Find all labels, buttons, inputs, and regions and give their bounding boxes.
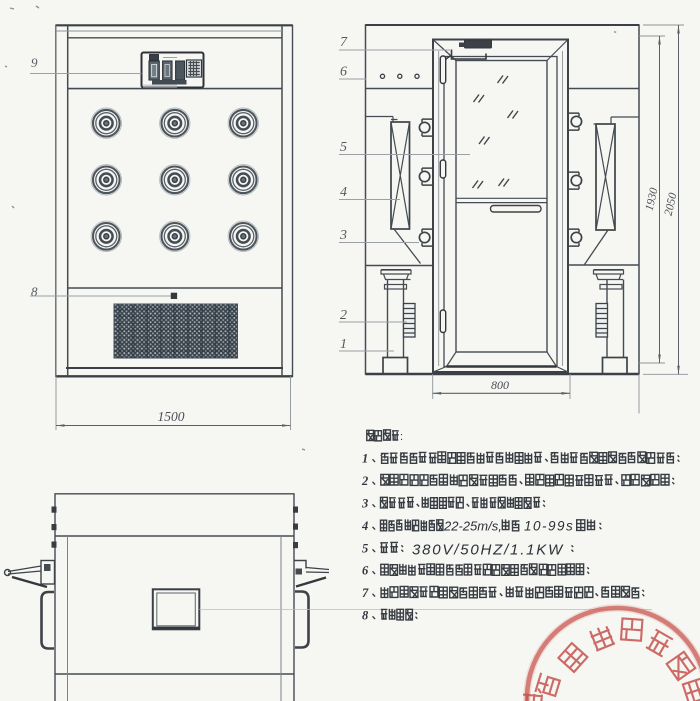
svg-text::: : bbox=[400, 431, 403, 443]
svg-text:7: 7 bbox=[340, 35, 348, 50]
svg-text:1: 1 bbox=[340, 337, 347, 352]
svg-text:6: 6 bbox=[340, 65, 347, 80]
svg-text:2050: 2050 bbox=[663, 192, 680, 217]
svg-text:9: 9 bbox=[31, 55, 38, 70]
svg-text:4: 4 bbox=[340, 185, 347, 200]
svg-text:4: 4 bbox=[361, 519, 368, 533]
svg-text:3: 3 bbox=[339, 228, 347, 243]
svg-text:5: 5 bbox=[362, 541, 368, 555]
svg-text:8: 8 bbox=[362, 608, 369, 622]
svg-text:2: 2 bbox=[340, 308, 347, 323]
svg-text:22-25m/s,: 22-25m/s, bbox=[443, 519, 502, 534]
svg-text:5: 5 bbox=[340, 140, 347, 155]
svg-text:1: 1 bbox=[362, 451, 368, 465]
svg-text:380V/50HZ/1.1KW: 380V/50HZ/1.1KW bbox=[412, 542, 564, 559]
svg-text:800: 800 bbox=[491, 378, 509, 392]
svg-text:2: 2 bbox=[361, 474, 368, 488]
svg-text:8: 8 bbox=[31, 284, 38, 299]
svg-text:1930: 1930 bbox=[644, 187, 661, 212]
svg-text:10-99s: 10-99s bbox=[524, 519, 574, 534]
svg-text:6: 6 bbox=[362, 563, 369, 577]
svg-text:3: 3 bbox=[361, 496, 368, 510]
svg-text:7: 7 bbox=[362, 586, 369, 600]
svg-text:1500: 1500 bbox=[158, 409, 185, 424]
